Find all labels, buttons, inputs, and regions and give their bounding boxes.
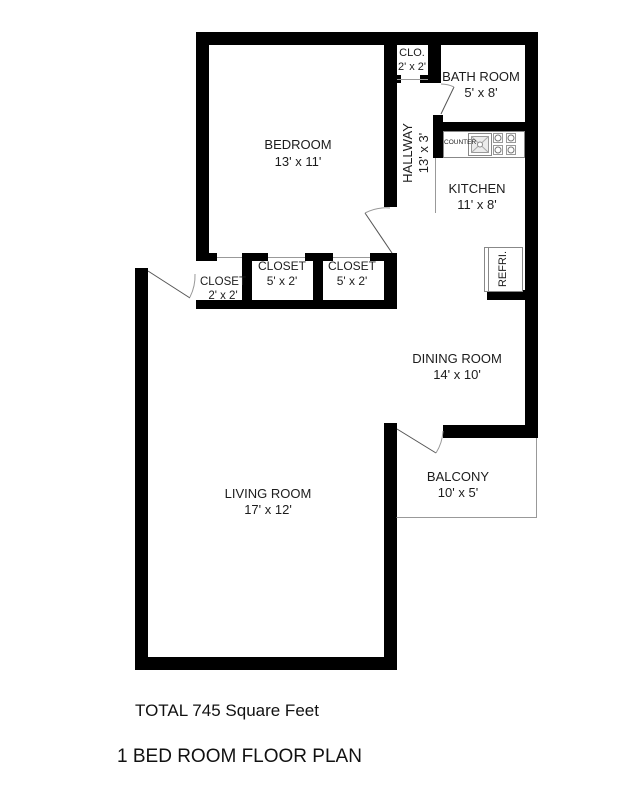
- label-closet-2: CLOSET 5' x 2': [251, 259, 313, 288]
- balcony-door-arc: [436, 431, 443, 453]
- hallway-name: HALLWAY: [400, 107, 416, 199]
- label-bathroom: BATH ROOM 5' x 8': [430, 69, 532, 101]
- label-closet-1: CLOSET 2' x 2': [198, 276, 248, 303]
- floor-plan-canvas: BEDROOM 13' x 11' CLO. 2' x 2' BATH ROOM…: [0, 0, 640, 800]
- label-closet-3: CLOSET 5' x 2': [320, 259, 384, 288]
- label-refrigerator: REFRI.: [496, 246, 510, 292]
- balcony-name: BALCONY: [408, 469, 508, 485]
- living-dims: 17' x 12': [198, 502, 338, 518]
- bedroom-dims: 13' x 11': [226, 153, 370, 170]
- bedroom-door-arc: [365, 208, 390, 213]
- total-area-text: TOTAL 745 Square Feet: [135, 701, 319, 721]
- clo-dims: 2' x 2': [389, 60, 435, 74]
- entry-door-arc: [190, 274, 195, 297]
- bathroom-name: BATH ROOM: [430, 69, 532, 85]
- balcony-dims: 10' x 5': [408, 485, 508, 501]
- label-counter: COUNTER: [444, 139, 476, 146]
- balcony-door-leaf: [397, 429, 436, 453]
- closet3-name: CLOSET: [320, 259, 384, 274]
- kitchen-name: KITCHEN: [427, 181, 527, 197]
- clo-name: CLO.: [389, 46, 435, 60]
- closet2-dims: 5' x 2': [251, 274, 313, 289]
- label-kitchen: KITCHEN 11' x 8': [427, 181, 527, 213]
- bedroom-door-leaf: [365, 213, 392, 253]
- living-name: LIVING ROOM: [198, 486, 338, 502]
- closet1-dims: 2' x 2': [198, 290, 248, 304]
- plan-title: 1 BED ROOM FLOOR PLAN: [117, 746, 362, 768]
- sink-drain: [478, 142, 483, 147]
- kitchen-dims: 11' x 8': [427, 197, 527, 213]
- dining-dims: 14' x 10': [397, 367, 517, 383]
- closet2-name: CLOSET: [251, 259, 313, 274]
- label-living-room: LIVING ROOM 17' x 12': [198, 486, 338, 518]
- label-bedroom: BEDROOM 13' x 11': [226, 136, 370, 170]
- label-dining-room: DINING ROOM 14' x 10': [397, 351, 517, 383]
- bedroom-name: BEDROOM: [226, 136, 370, 153]
- label-clo: CLO. 2' x 2': [389, 46, 435, 74]
- bathroom-dims: 5' x 8': [430, 85, 532, 101]
- closet3-dims: 5' x 2': [320, 274, 384, 289]
- entry-door-leaf: [148, 271, 190, 298]
- closet1-name: CLOSET: [198, 276, 248, 290]
- plan-linework: [0, 0, 640, 800]
- dining-name: DINING ROOM: [397, 351, 517, 367]
- label-balcony: BALCONY 10' x 5': [408, 469, 508, 501]
